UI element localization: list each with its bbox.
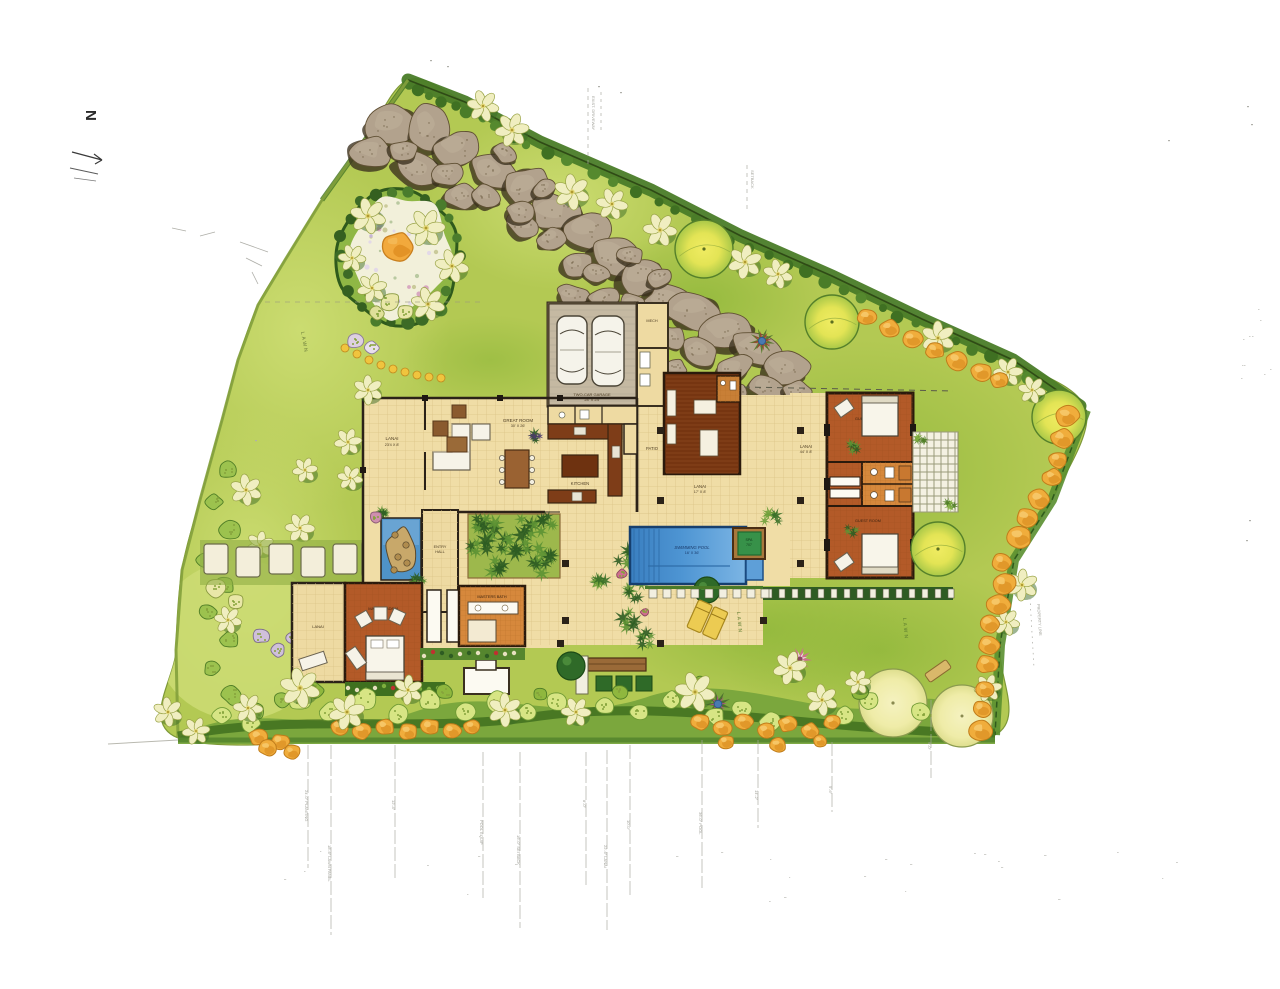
svg-text:7X7: 7X7 bbox=[746, 543, 752, 547]
svg-text:MECH: MECH bbox=[646, 319, 657, 323]
svg-text:SETBACK: SETBACK bbox=[750, 170, 755, 189]
svg-text:POOL EQUIP: POOL EQUIP bbox=[479, 820, 484, 845]
svg-text:8'-0": 8'-0" bbox=[582, 800, 587, 809]
svg-text:LANAI: LANAI bbox=[694, 484, 706, 489]
svg-text:24'-0" PLANTING: 24'-0" PLANTING bbox=[304, 790, 309, 821]
svg-text:ENTRY: ENTRY bbox=[434, 545, 447, 549]
svg-text:10'-0": 10'-0" bbox=[626, 820, 631, 831]
svg-text:SWIMMING POOL: SWIMMING POOL bbox=[674, 545, 710, 550]
svg-text:HALL: HALL bbox=[435, 550, 445, 554]
svg-text:44' X 8': 44' X 8' bbox=[800, 450, 813, 454]
svg-text:17' X 8': 17' X 8' bbox=[694, 490, 707, 494]
svg-text:9'-6": 9'-6" bbox=[828, 786, 833, 795]
svg-text:LANAI: LANAI bbox=[385, 436, 398, 441]
svg-text:GREAT ROOM: GREAT ROOM bbox=[503, 418, 534, 423]
svg-text:16'-0" SETBACK: 16'-0" SETBACK bbox=[516, 835, 521, 865]
svg-text:PATIO: PATIO bbox=[646, 446, 659, 451]
svg-text:16' X 36': 16' X 36' bbox=[685, 551, 700, 555]
svg-text:22'-6" LANAI: 22'-6" LANAI bbox=[603, 845, 608, 868]
svg-text:GUEST ROOM: GUEST ROOM bbox=[855, 519, 881, 523]
svg-text:N: N bbox=[82, 110, 99, 121]
svg-text:36'-0" POOL: 36'-0" POOL bbox=[698, 812, 703, 835]
svg-text:6'-0": 6'-0" bbox=[927, 742, 932, 751]
svg-text:KITCHEN: KITCHEN bbox=[571, 481, 589, 486]
svg-text:30' X 26': 30' X 26' bbox=[511, 424, 526, 428]
svg-text:23'4 X 8': 23'4 X 8' bbox=[385, 443, 400, 447]
svg-text:12'-4": 12'-4" bbox=[391, 800, 396, 811]
svg-text:14'-2": 14'-2" bbox=[754, 790, 759, 801]
svg-text:LANAI: LANAI bbox=[800, 444, 812, 449]
svg-text:LANAI: LANAI bbox=[312, 624, 324, 629]
svg-text:18'-6" LAWN PANEL: 18'-6" LAWN PANEL bbox=[327, 845, 332, 882]
svg-text:MASTERS BATH: MASTERS BATH bbox=[477, 595, 507, 599]
svg-text:EXIST. DRIVEWAY: EXIST. DRIVEWAY bbox=[591, 96, 596, 131]
svg-text:SPA: SPA bbox=[746, 538, 754, 542]
